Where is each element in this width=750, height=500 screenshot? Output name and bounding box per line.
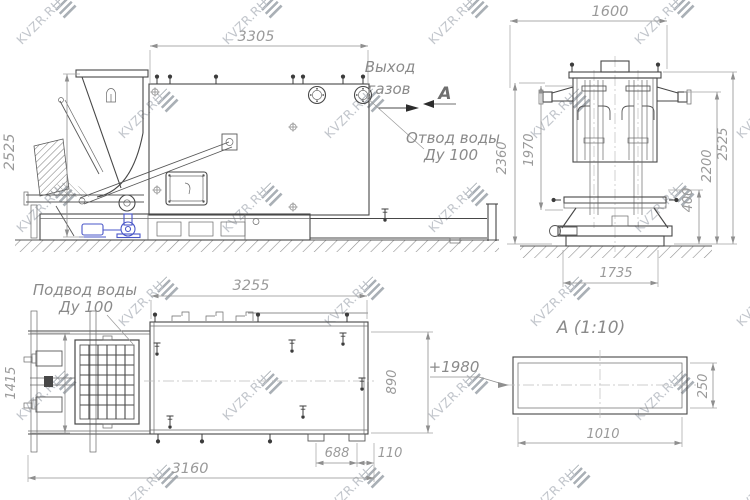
fuel-hopper [76, 70, 148, 197]
dim-side-width: 3305 [238, 29, 275, 45]
section-arrow-icon [423, 100, 434, 108]
ash-conveyor [310, 204, 498, 243]
elevation-mark: +1980 [429, 358, 480, 376]
technical-drawing: 3305 2525 Выход газов А Отвод воды Ду 10… [0, 0, 750, 500]
label-water-drain-1: Отвод воды [406, 129, 500, 147]
dim-top-height-right: 890 [385, 370, 400, 395]
drawing-canvas: KVZR.RUKVZR.RUKVZR.RUKVZR.RUKVZR.RUKVZR.… [0, 0, 750, 500]
base-frame [40, 214, 310, 240]
label-water-drain-2: Ду 100 [423, 146, 478, 164]
elevation-arrow-icon [498, 382, 509, 388]
dim-front-height-inner-left: 1970 [522, 133, 537, 166]
pusher-assembly [24, 311, 150, 452]
detail-title: А (1:10) [556, 318, 625, 338]
label-water-supply-1: Подвод воды [33, 281, 137, 299]
dim-edge-offset: 110 [378, 446, 403, 461]
dim-foot-span: 688 [325, 446, 350, 461]
boiler-body [149, 84, 369, 215]
side-view: 3305 2525 Выход газов А Отвод воды Ду 10… [2, 29, 500, 252]
access-hatch [166, 172, 207, 205]
dim-front-height-base: 400 [681, 188, 696, 213]
dim-front-width-bottom: 1735 [599, 266, 632, 281]
label-water-supply-2: Ду 100 [58, 298, 113, 316]
body-plan [150, 322, 368, 434]
dim-detail-height: 250 [696, 374, 711, 399]
flue-flange [309, 87, 326, 104]
flow-arrow-icon [406, 104, 419, 111]
lifting-point-icon [152, 185, 161, 194]
dim-side-height: 2525 [2, 134, 18, 171]
label-gas-outlet-2: газов [367, 80, 410, 98]
lifting-point-icon [288, 202, 297, 211]
dim-front-height-outer-right: 2525 [716, 127, 731, 160]
lifting-point-icon [288, 122, 297, 131]
dim-front-height-mid: 2200 [700, 149, 715, 182]
grate [75, 336, 139, 428]
detail-view-a: А (1:10) +1980 1010 250 [429, 318, 717, 447]
front-view: 1600 2360 1970 400 2200 2525 1735 [495, 4, 737, 287]
lifting-point-icon [150, 87, 159, 96]
stoker-mechanism [24, 98, 237, 239]
ground-hatch [520, 246, 712, 258]
section-arrow-label: А [436, 84, 451, 104]
dim-front-width: 1600 [592, 4, 629, 20]
pump-unit [79, 214, 140, 238]
dim-top-width-bottom: 3160 [172, 461, 209, 477]
ground-hatch [15, 240, 499, 252]
top-view: 3255 1415 890 3160 688 110 Подвод воды Д… [4, 278, 433, 482]
dim-detail-width: 1010 [586, 427, 619, 442]
dim-top-height-left: 1415 [4, 366, 19, 399]
label-gas-outlet-1: Выход [365, 58, 416, 76]
dim-top-width: 3255 [233, 278, 270, 294]
dim-front-height-outer-left: 2360 [495, 141, 510, 174]
